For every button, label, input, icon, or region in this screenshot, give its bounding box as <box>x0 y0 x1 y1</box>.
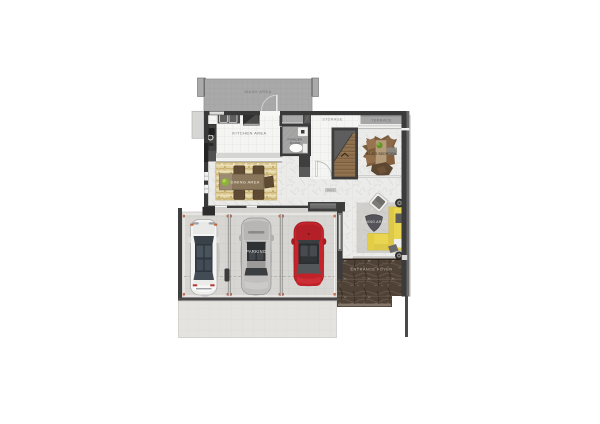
svg-text:LIVING AREA: LIVING AREA <box>362 220 387 224</box>
svg-text:MAID'S BEDROOM: MAID'S BEDROOM <box>366 152 397 156</box>
svg-text:DINING AREA: DINING AREA <box>230 179 259 184</box>
svg-text:WASH AREA: WASH AREA <box>244 89 271 94</box>
svg-text:KITCHEN AREA: KITCHEN AREA <box>232 130 266 135</box>
svg-text:HALL: HALL <box>327 188 335 192</box>
svg-text:TERRACE: TERRACE <box>371 119 392 123</box>
svg-text:STORAGE: STORAGE <box>322 118 343 122</box>
svg-text:ENTRANCE FOYER: ENTRANCE FOYER <box>350 268 392 272</box>
svg-text:PARKING: PARKING <box>246 249 266 254</box>
svg-text:ROOM: ROOM <box>290 141 301 145</box>
